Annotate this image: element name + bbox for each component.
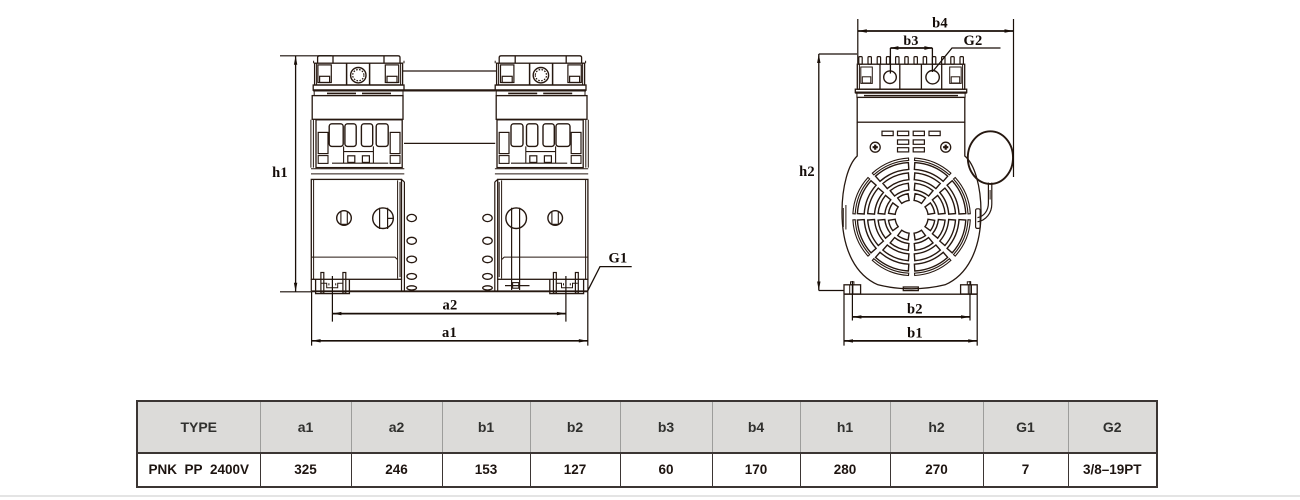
svg-text:a1: a1 <box>442 325 457 341</box>
svg-text:G2: G2 <box>964 33 983 49</box>
svg-text:h2: h2 <box>799 164 815 180</box>
svg-text:G1: G1 <box>609 251 628 267</box>
svg-text:a2: a2 <box>443 298 458 314</box>
svg-text:b2: b2 <box>907 302 923 318</box>
svg-text:b1: b1 <box>907 325 923 341</box>
svg-text:b4: b4 <box>932 16 948 32</box>
svg-text:h1: h1 <box>272 165 288 181</box>
svg-text:b3: b3 <box>903 34 918 49</box>
